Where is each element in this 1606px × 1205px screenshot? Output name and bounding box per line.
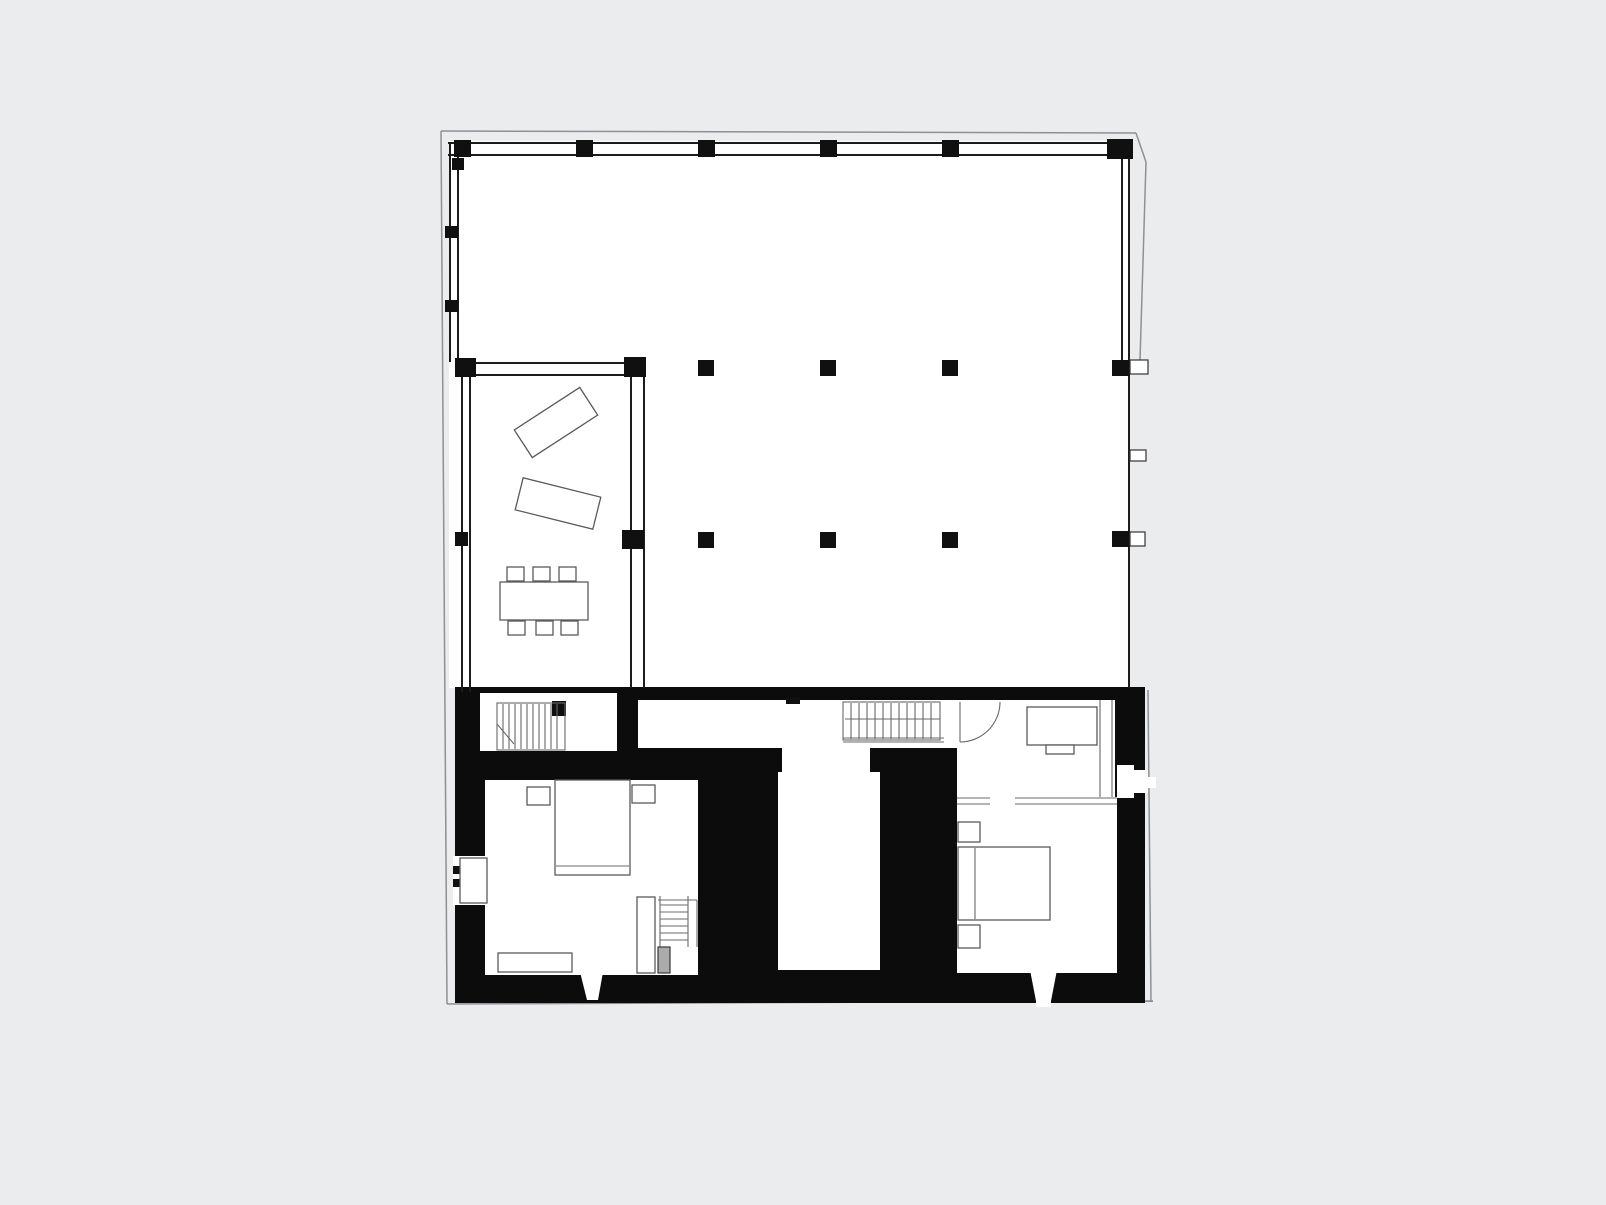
column-row2-3 bbox=[942, 532, 958, 548]
column-topwall-1 bbox=[454, 140, 471, 157]
right-protrusion-2 bbox=[1133, 770, 1148, 793]
nightstand-right-2 bbox=[958, 925, 980, 948]
study-chair bbox=[1046, 745, 1074, 754]
column-row1-1 bbox=[698, 360, 714, 376]
ladder-base-box bbox=[658, 947, 670, 973]
column-leftwall-1 bbox=[445, 226, 458, 238]
light-well-floor bbox=[778, 772, 880, 970]
left-door-leaf bbox=[460, 858, 487, 903]
column-lounge-nw bbox=[455, 358, 476, 377]
study-desk bbox=[1027, 707, 1097, 745]
corridor-floor bbox=[638, 700, 957, 748]
window-tab-3 bbox=[1130, 532, 1145, 546]
floor-plan-canvas bbox=[0, 0, 1606, 1205]
dining-table bbox=[500, 582, 588, 620]
closet-tall bbox=[637, 897, 655, 973]
site-line-top bbox=[441, 131, 1136, 133]
column-row1-2 bbox=[820, 360, 836, 376]
column-topwall-5 bbox=[942, 140, 959, 157]
floor-plan-page bbox=[0, 0, 1606, 1205]
column-row2-1 bbox=[698, 532, 714, 548]
dining-chair-4 bbox=[508, 621, 525, 635]
nightstand-left-2 bbox=[632, 785, 655, 803]
column-row1-wall bbox=[1112, 360, 1130, 376]
column-topwall-3 bbox=[698, 140, 715, 157]
dining-chair-6 bbox=[561, 621, 578, 635]
dining-chair-2 bbox=[533, 567, 550, 581]
column-topwall-2 bbox=[576, 140, 593, 157]
bed-left bbox=[555, 780, 630, 875]
column-lounge-ne bbox=[624, 357, 646, 377]
column-lounge-w bbox=[455, 532, 468, 546]
nightstand-left-1 bbox=[527, 787, 550, 805]
dining-chair-5 bbox=[536, 621, 553, 635]
site-line-right-lower bbox=[1148, 690, 1151, 1001]
dining-chair-3 bbox=[559, 567, 576, 581]
dining-chair-1 bbox=[507, 567, 524, 581]
site-line-right-upper bbox=[1140, 162, 1146, 360]
column-stub-nw bbox=[452, 158, 464, 170]
stair-room-left-floor bbox=[480, 693, 617, 751]
right-protrusion-1 bbox=[1117, 765, 1134, 798]
bench-left bbox=[498, 953, 572, 972]
bottom-door-right-step bbox=[1036, 1001, 1051, 1007]
site-line-left bbox=[441, 131, 447, 1004]
column-row1-3 bbox=[942, 360, 958, 376]
bed-right bbox=[958, 847, 1050, 920]
wall-tabs bbox=[1130, 360, 1148, 546]
site-line-topright bbox=[1136, 133, 1146, 162]
column-row2-wall bbox=[1112, 531, 1130, 547]
light-well-notch bbox=[782, 748, 870, 774]
column-topwall-4 bbox=[820, 140, 837, 157]
column-leftwall-2 bbox=[445, 300, 458, 312]
right-protrusion-3 bbox=[1147, 777, 1156, 788]
window-tab-2 bbox=[1130, 450, 1146, 461]
column-corridor-stub bbox=[786, 697, 800, 704]
column-corner-ne bbox=[1107, 139, 1133, 159]
nightstand-right-1 bbox=[958, 822, 980, 842]
window-tab-1 bbox=[1130, 360, 1148, 374]
column-row2-2 bbox=[820, 532, 836, 548]
column-lounge-e bbox=[622, 530, 644, 549]
